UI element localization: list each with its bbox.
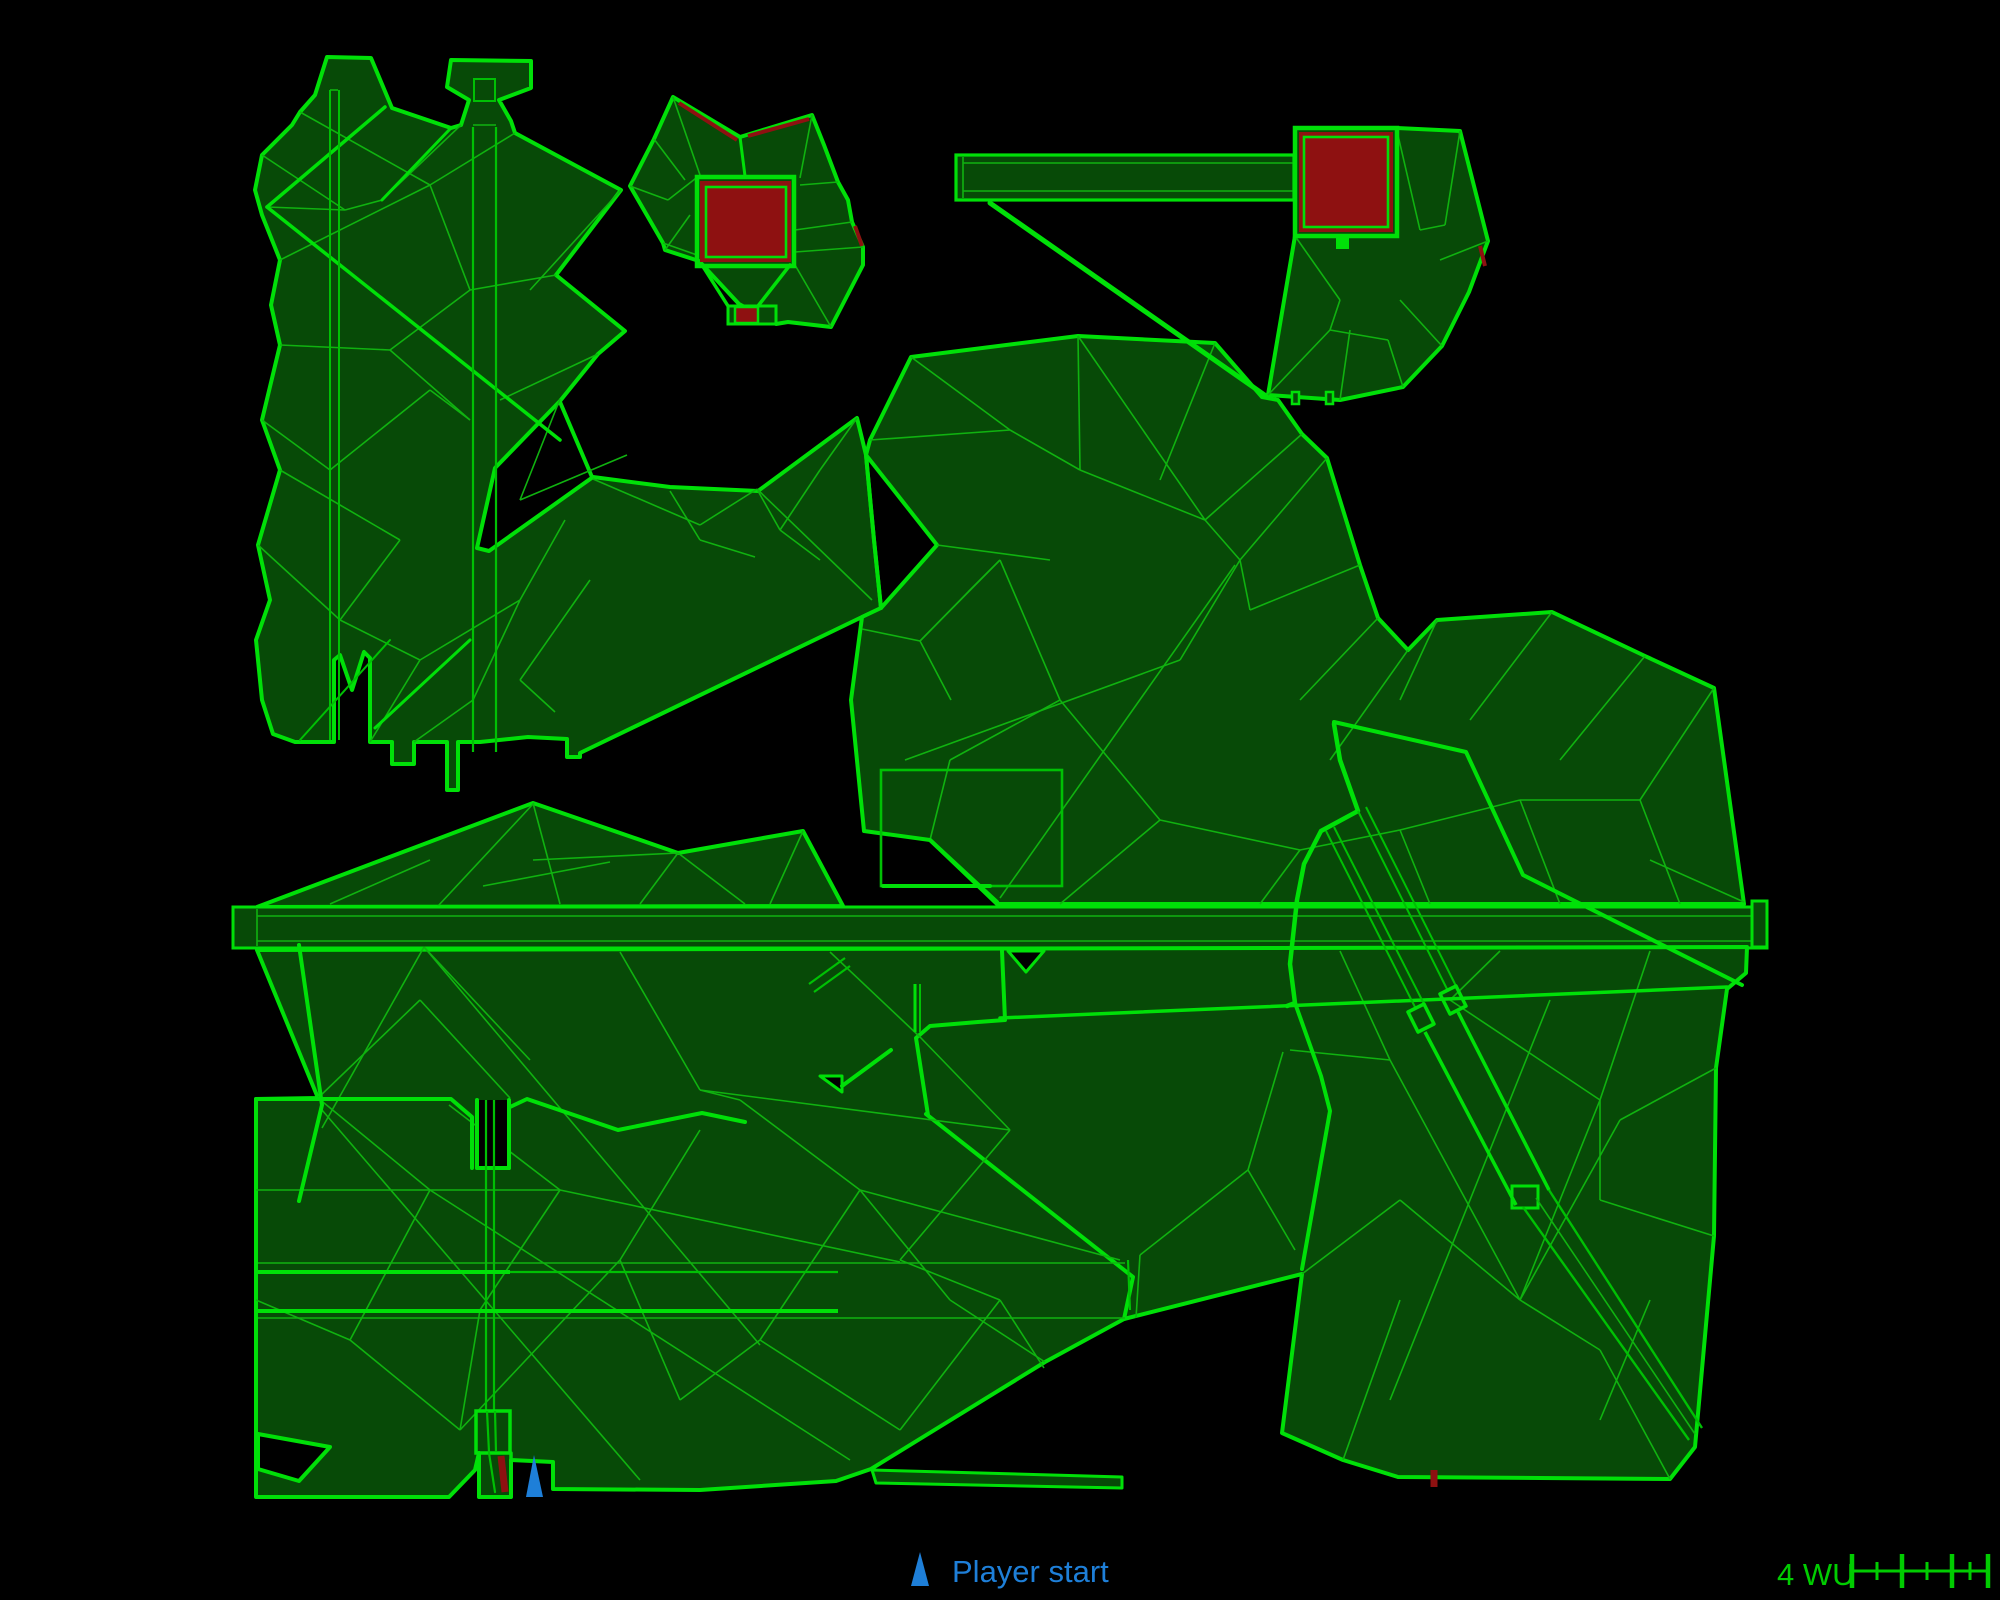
svg-text:4 WU: 4 WU: [1777, 1557, 1855, 1592]
svg-text:Player start: Player start: [952, 1554, 1109, 1589]
